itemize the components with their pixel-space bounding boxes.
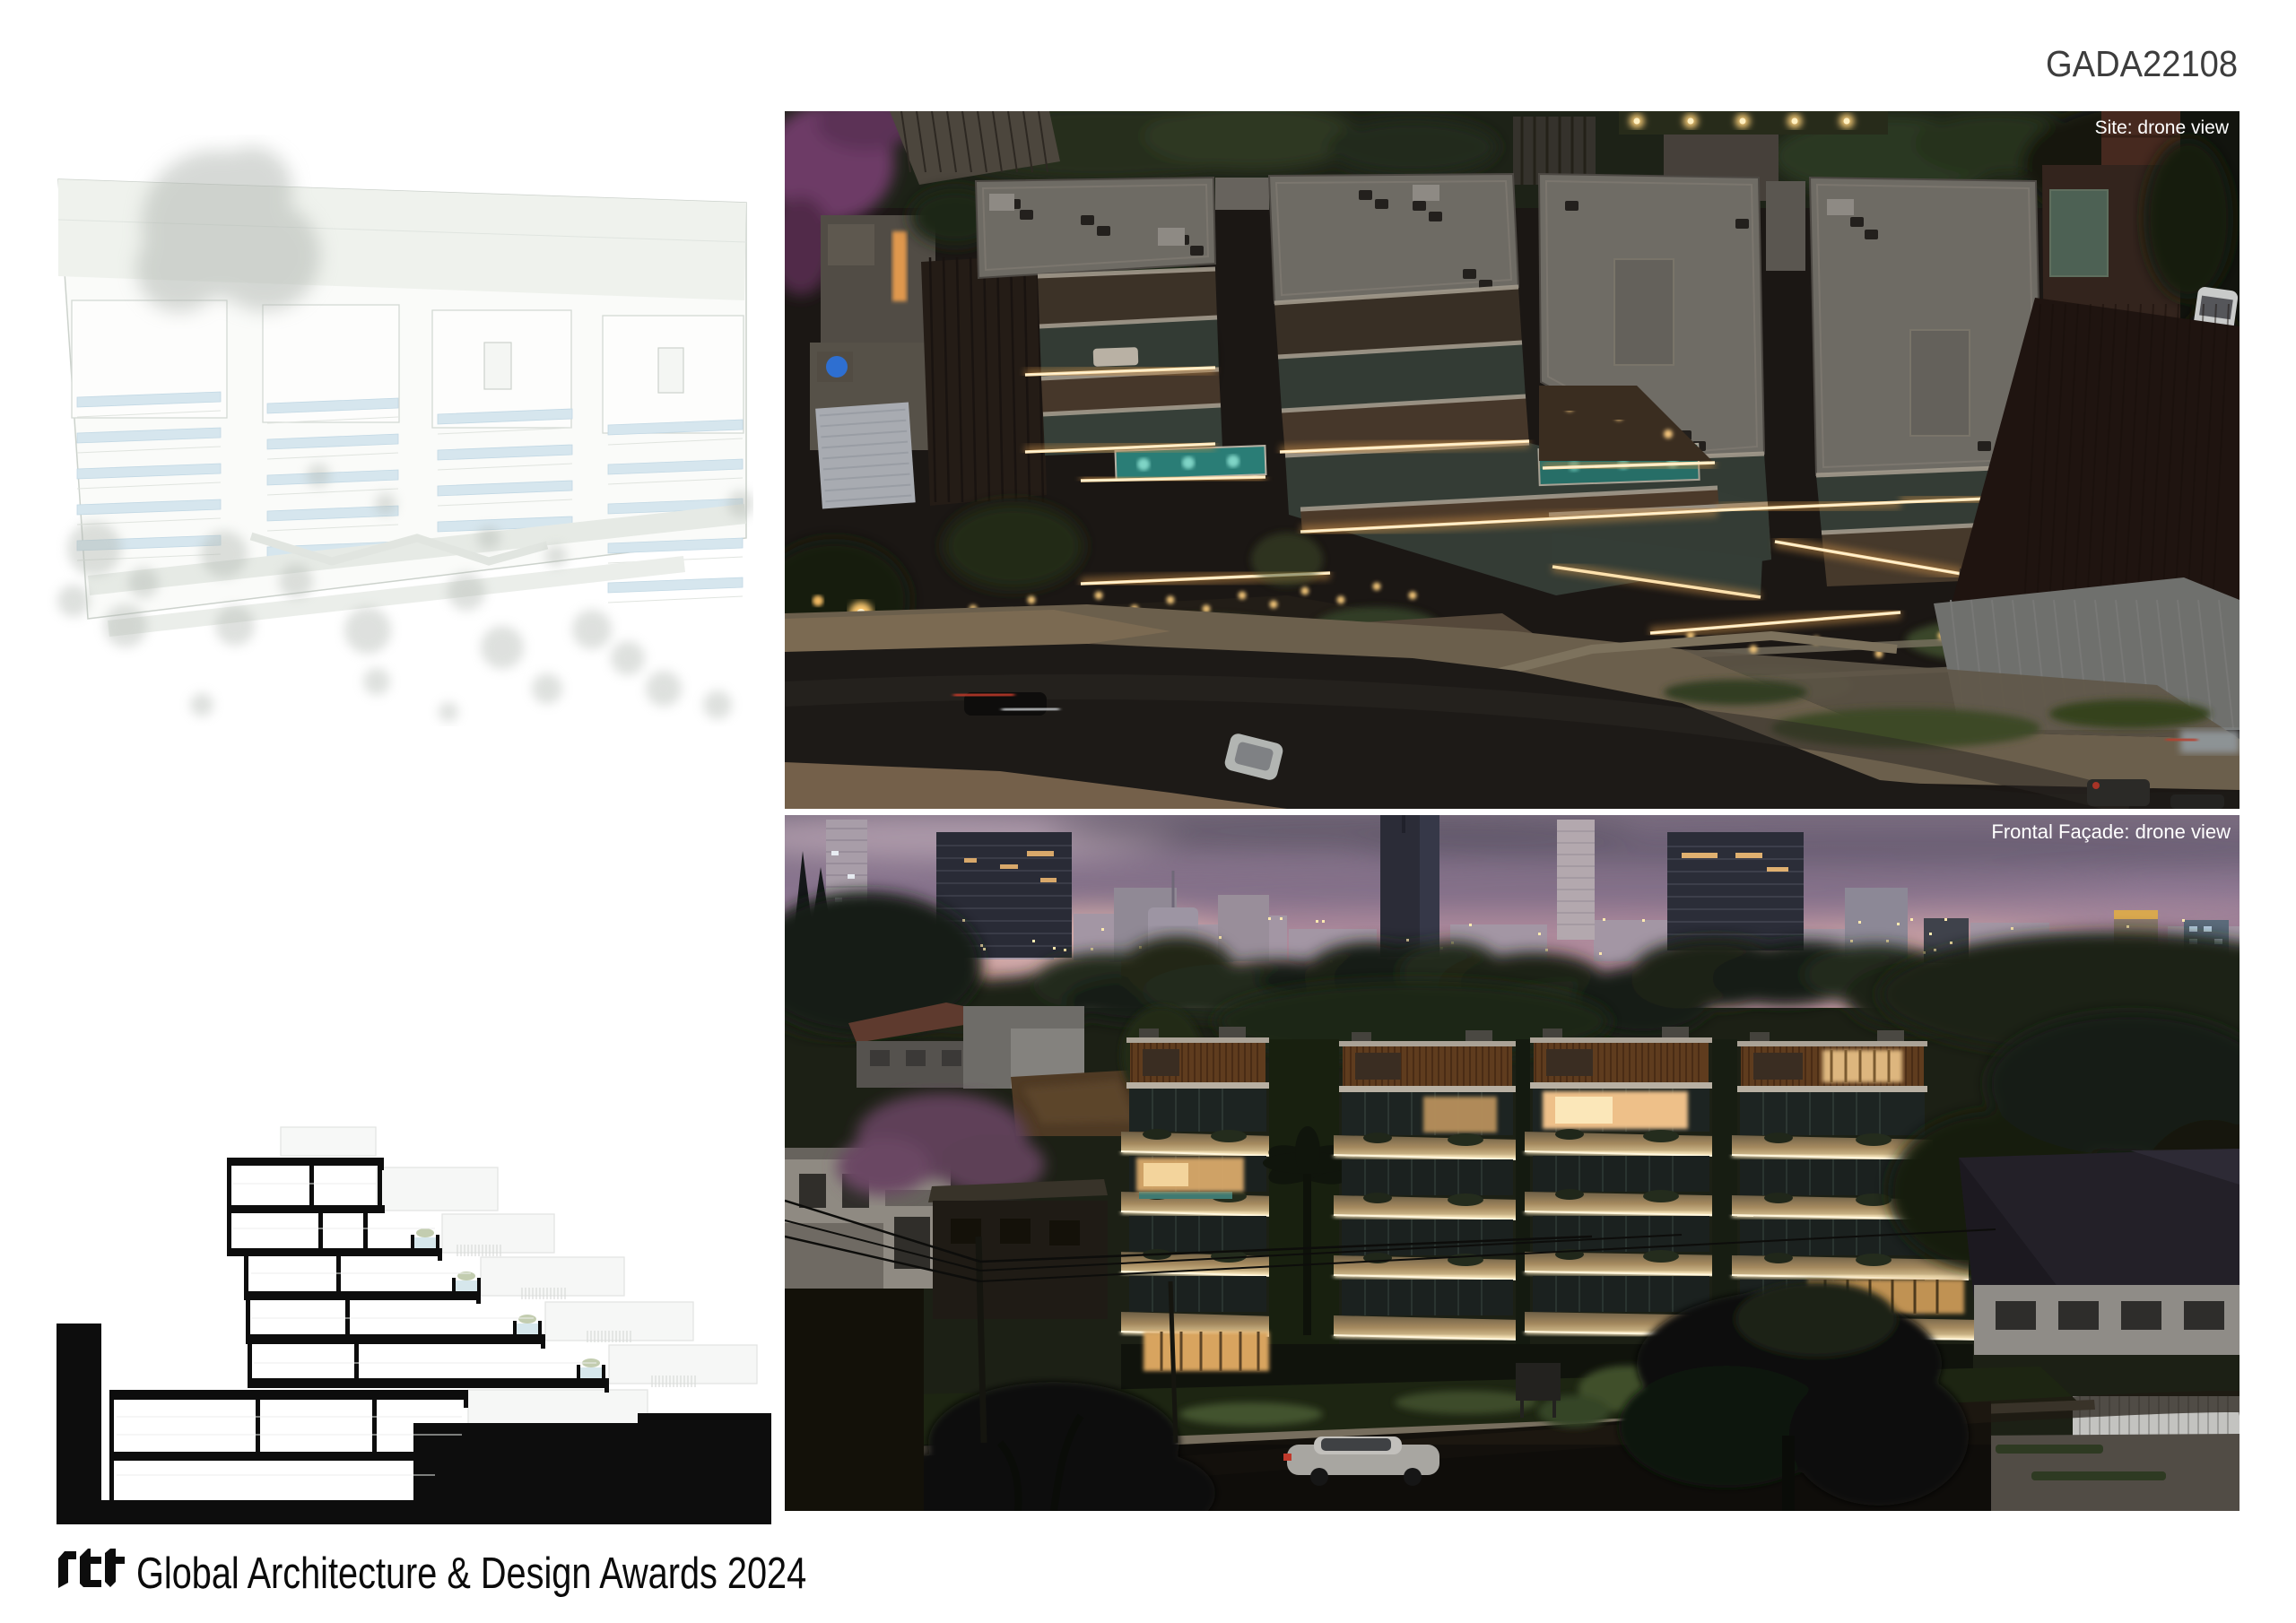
svg-text:Frontal Façade: drone view: Frontal Façade: drone view [1991,820,2231,843]
svg-text:Site: drone view: Site: drone view [2095,117,2230,138]
